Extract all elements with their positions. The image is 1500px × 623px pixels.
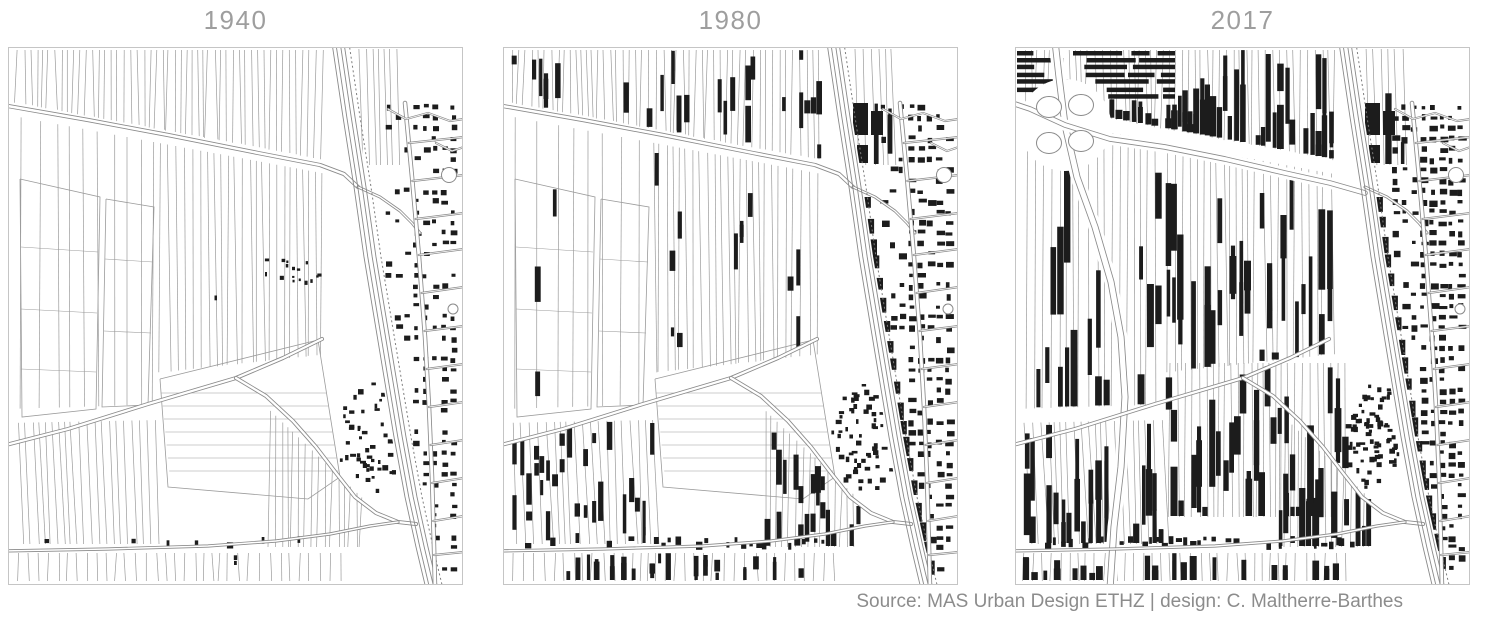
figure-ground-map-2017 bbox=[1015, 47, 1470, 585]
source-caption: Source: MAS Urban Design ETHZ | design: … bbox=[856, 591, 1403, 613]
year-label-1940: 1940 bbox=[8, 5, 463, 36]
map-panel-1940 bbox=[8, 47, 463, 585]
figure-ground-map-1980 bbox=[503, 47, 958, 585]
map-panel-1980 bbox=[503, 47, 958, 585]
map-panel-2017 bbox=[1015, 47, 1470, 585]
year-label-1980: 1980 bbox=[503, 5, 958, 36]
year-label-2017: 2017 bbox=[1015, 5, 1470, 36]
figure-ground-map-1940 bbox=[8, 47, 463, 585]
comparison-figure: 1940 1980 2017 Source: MAS Urban Design … bbox=[0, 0, 1500, 623]
